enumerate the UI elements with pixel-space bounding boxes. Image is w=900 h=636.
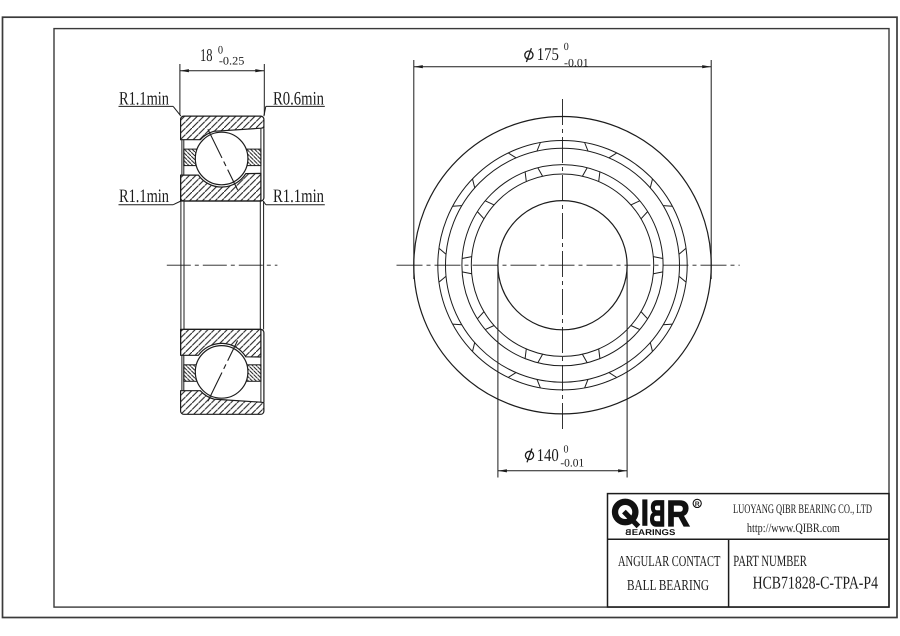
svg-text:ANGULAR CONTACT: ANGULAR CONTACT [618,553,721,570]
svg-text:PART NUMBER: PART NUMBER [733,553,807,570]
svg-text:-0.01: -0.01 [560,458,584,470]
svg-text:R1.1min: R1.1min [119,186,169,207]
svg-text:http://www.QIBR.com: http://www.QIBR.com [747,521,840,535]
svg-text:EARINGS: EARINGS [632,527,676,537]
svg-text:0: 0 [564,444,569,456]
svg-text:-0.01: -0.01 [564,57,589,69]
svg-text:BALL BEARING: BALL BEARING [627,577,709,594]
svg-text:175: 175 [537,44,559,64]
svg-text:0: 0 [564,41,569,53]
svg-text:LUOYANG QIBR BEARING CO., LTD: LUOYANG QIBR BEARING CO., LTD [733,501,872,516]
svg-text:18: 18 [200,45,213,65]
svg-text:-0.25: -0.25 [219,56,245,68]
svg-text:B: B [625,527,631,537]
svg-text:140: 140 [537,445,559,465]
svg-text:R1.1min: R1.1min [273,186,324,207]
svg-text:HCB71828-C-TPA-P4: HCB71828-C-TPA-P4 [753,573,878,593]
svg-text:R: R [695,501,700,508]
